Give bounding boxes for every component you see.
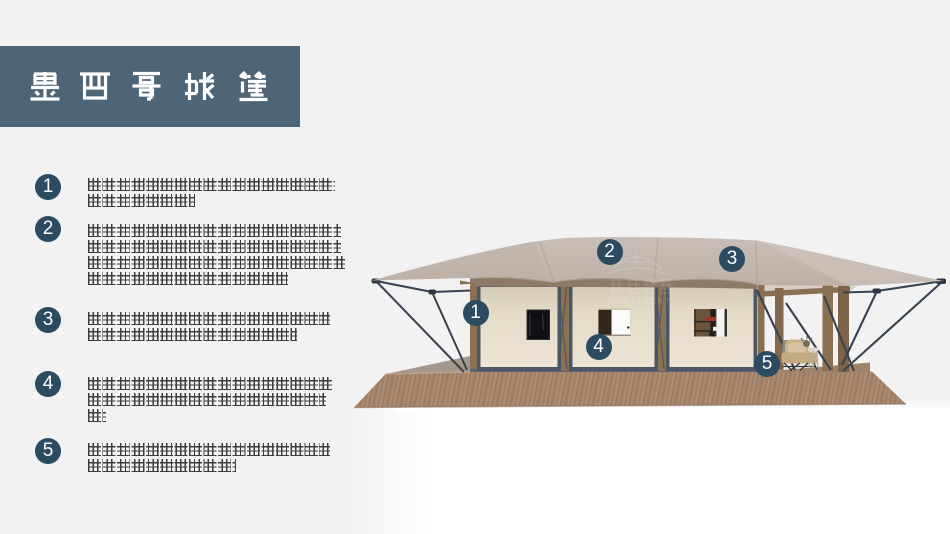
svg-text:XUELI TENT: XUELI TENT — [610, 297, 671, 306]
